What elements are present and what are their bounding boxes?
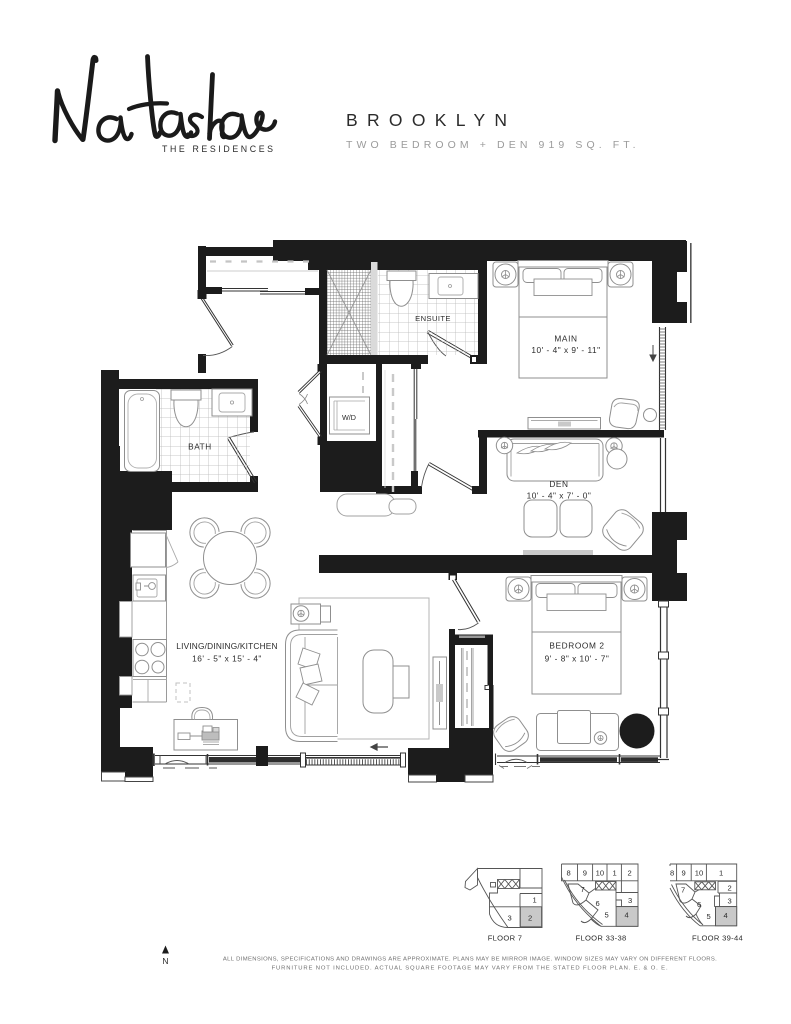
svg-text:7: 7 [581,885,585,894]
svg-text:10: 10 [596,869,604,878]
svg-text:BATH: BATH [188,443,212,452]
svg-text:FURNITURE NOT INCLUDED. ACTUAL: FURNITURE NOT INCLUDED. ACTUAL SQUARE FO… [272,966,669,972]
svg-text:1: 1 [533,896,537,905]
svg-text:FLOOR 33-38: FLOOR 33-38 [576,934,627,943]
svg-text:2: 2 [628,869,632,878]
svg-text:9: 9 [583,869,587,878]
svg-text:4: 4 [625,911,629,920]
svg-text:6: 6 [697,900,701,909]
svg-text:6: 6 [596,899,600,908]
svg-text:8: 8 [670,869,674,878]
svg-text:3: 3 [628,896,632,905]
svg-text:10' - 4" x 7' - 0": 10' - 4" x 7' - 0" [527,491,592,501]
svg-text:8: 8 [567,869,571,878]
svg-text:10' - 4" x 9' - 11": 10' - 4" x 9' - 11" [531,345,600,355]
svg-text:2: 2 [528,914,532,923]
svg-text:4: 4 [724,911,728,920]
svg-text:LIVING/DINING/KITCHEN: LIVING/DINING/KITCHEN [176,641,277,651]
svg-text:5: 5 [707,912,711,921]
svg-text:W/D: W/D [342,413,356,422]
svg-text:THE RESIDENCES: THE RESIDENCES [162,144,276,154]
svg-text:DEN: DEN [549,479,568,489]
svg-text:9: 9 [682,869,686,878]
svg-text:FLOOR 7: FLOOR 7 [488,934,523,943]
svg-text:BROOKLYN: BROOKLYN [346,110,516,130]
svg-text:ALL DIMENSIONS, SPECIFICATIONS: ALL DIMENSIONS, SPECIFICATIONS AND DRAWI… [223,957,717,963]
svg-text:BEDROOM 2: BEDROOM 2 [549,641,604,651]
svg-text:9' - 8" x 10' - 7": 9' - 8" x 10' - 7" [545,654,610,664]
svg-text:5: 5 [605,911,609,920]
svg-text:ENSUITE: ENSUITE [415,314,451,323]
svg-text:3: 3 [728,897,732,906]
svg-text:MAIN: MAIN [554,334,577,344]
svg-text:2: 2 [728,884,732,893]
svg-text:10: 10 [695,869,703,878]
svg-text:16' - 5" x 15' - 4": 16' - 5" x 15' - 4" [192,654,262,664]
svg-text:1: 1 [613,869,617,878]
svg-text:TWO BEDROOM + DEN 919 SQ. FT.: TWO BEDROOM + DEN 919 SQ. FT. [346,139,640,151]
svg-text:7: 7 [681,886,685,895]
svg-text:FLOOR 39-44: FLOOR 39-44 [692,934,743,943]
svg-text:1: 1 [719,869,723,878]
svg-text:3: 3 [508,914,512,923]
svg-text:N: N [162,956,168,966]
